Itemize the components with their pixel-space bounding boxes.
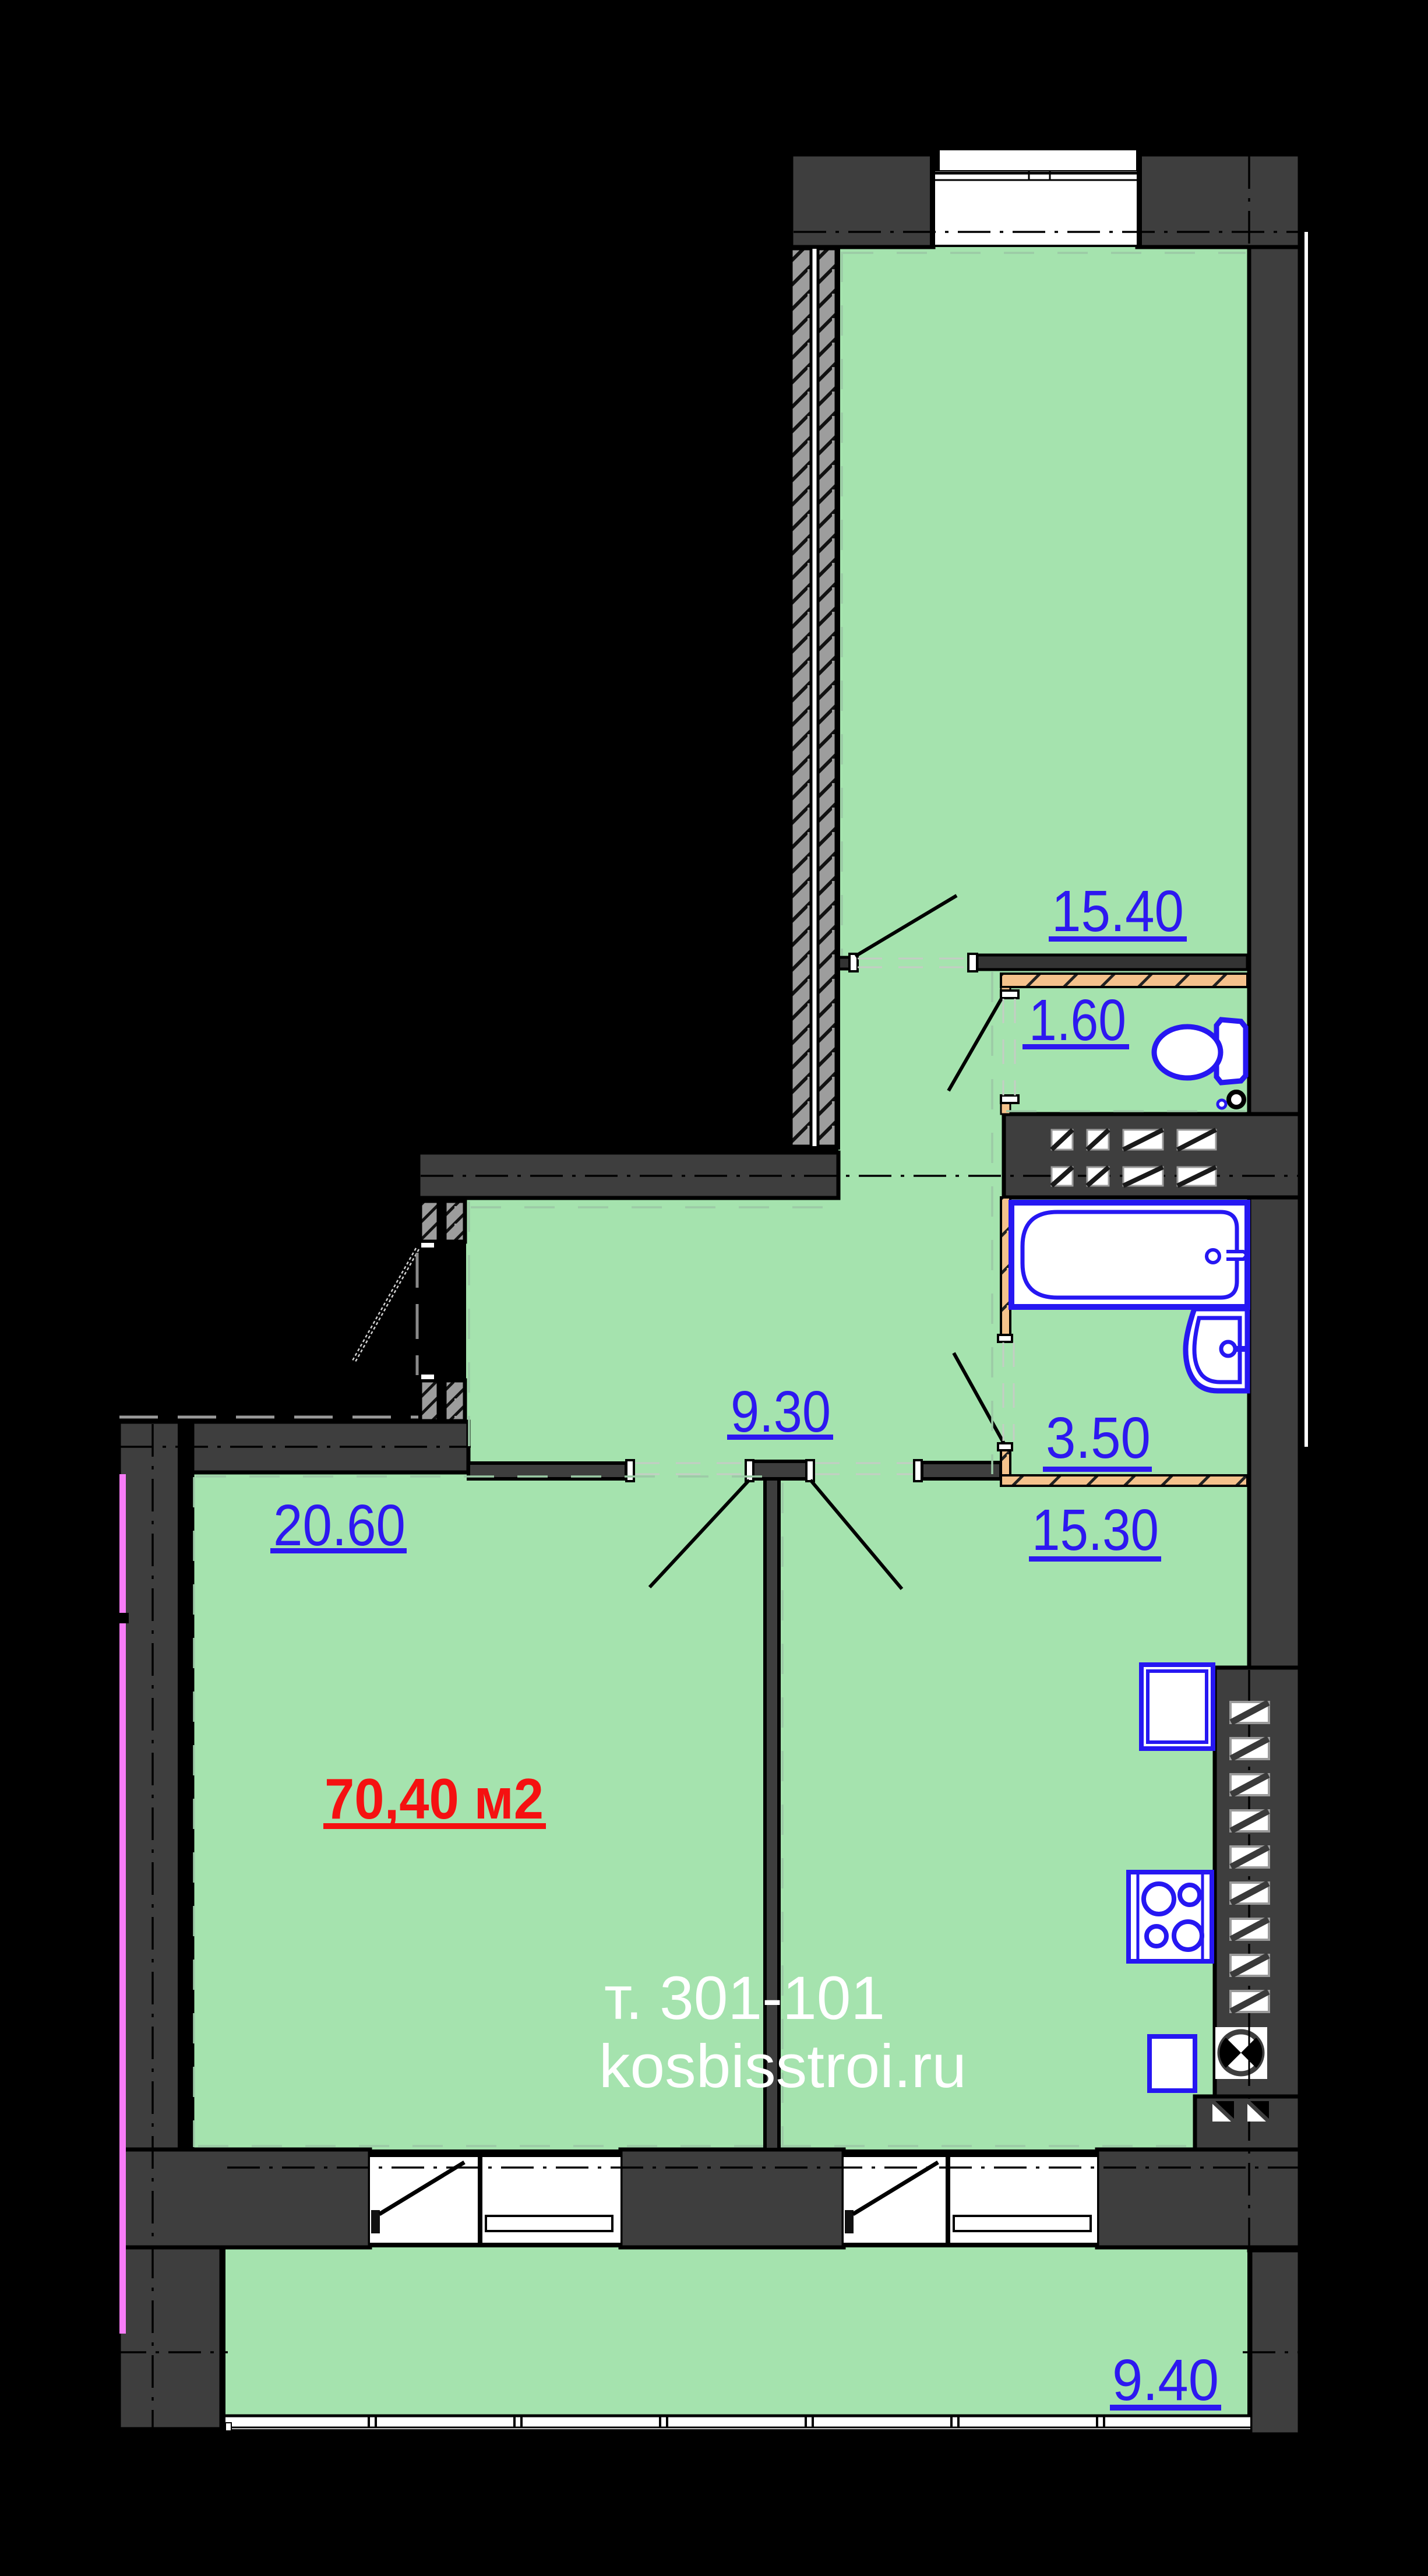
svg-text:3.50: 3.50 (1046, 1405, 1151, 1471)
svg-text:15.30: 15.30 (1032, 1497, 1159, 1563)
svg-text:т. 301-101: т. 301-101 (604, 1964, 885, 2032)
svg-text:70,40 м2: 70,40 м2 (325, 1767, 544, 1831)
svg-text:9.40: 9.40 (1112, 2348, 1219, 2413)
svg-text:15.40: 15.40 (1052, 879, 1184, 944)
svg-text:1.60: 1.60 (1029, 988, 1126, 1053)
svg-text:kosbisstroi.ru: kosbisstroi.ru (599, 2032, 967, 2101)
